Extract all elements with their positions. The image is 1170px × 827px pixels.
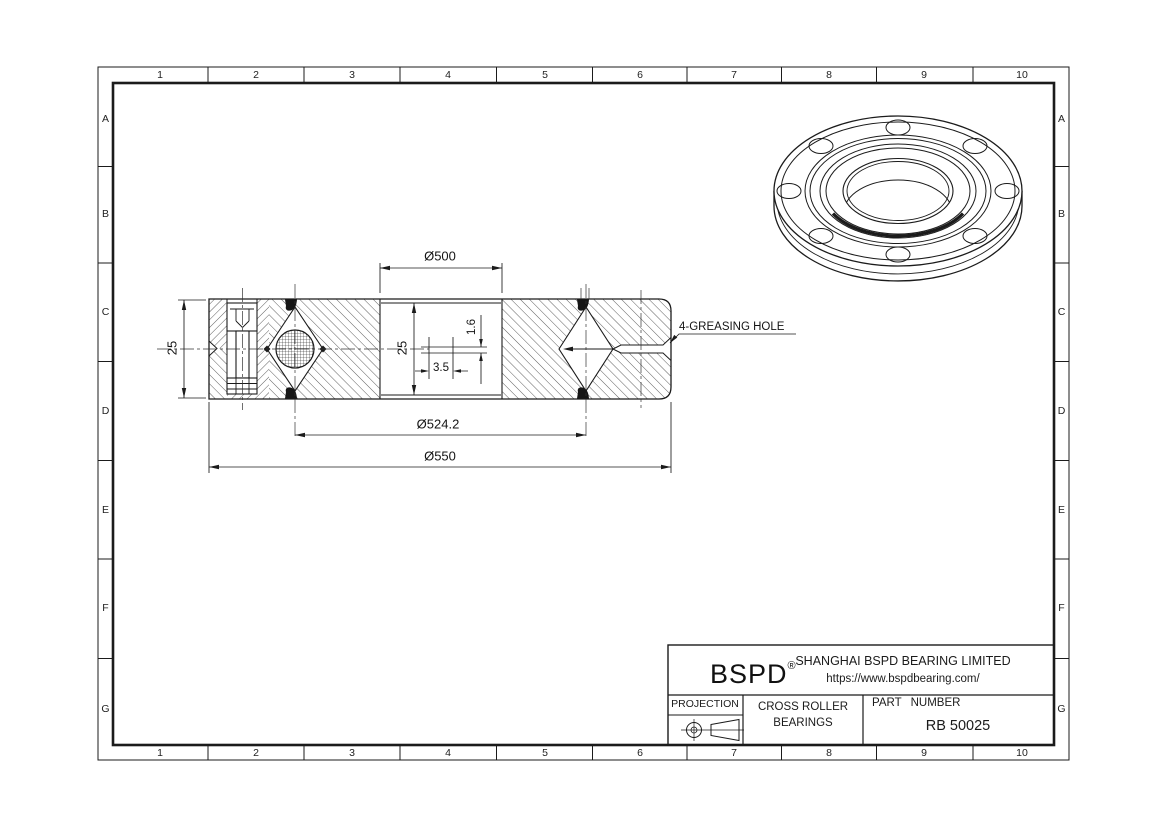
company-name: SHANGHAI BSPD BEARING LIMITED	[795, 654, 1010, 668]
grid-column-label-top: 2	[253, 69, 259, 81]
grid-row-label-right: F	[1058, 602, 1064, 614]
grid-column-label-bottom: 1	[157, 747, 163, 759]
section-view	[157, 263, 796, 473]
part-number-value: RB 50025	[926, 718, 991, 734]
grid-column-label-top: 3	[349, 69, 355, 81]
grid-row-label-left: B	[102, 208, 109, 220]
grid-row-label-left: F	[102, 602, 108, 614]
dim-pitch-label: Ø524.2	[417, 417, 460, 432]
grid-column-label-top: 9	[921, 69, 927, 81]
projection-symbol	[681, 719, 744, 741]
grid-column-label-top: 1	[157, 69, 163, 81]
grid-row-label-left: D	[102, 405, 110, 417]
dim-bore-label: Ø500	[424, 249, 456, 264]
grid-row-label-right: E	[1058, 504, 1065, 516]
grid-row-label-right: G	[1057, 703, 1065, 715]
grid-column-label-top: 7	[731, 69, 737, 81]
grid-column-label-bottom: 4	[445, 747, 451, 759]
grid-column-label-top: 4	[445, 69, 451, 81]
dim-width-left-label: 25	[165, 341, 180, 355]
company-logo: BSPD®	[710, 659, 797, 690]
grid-column-label-top: 8	[826, 69, 832, 81]
dim-width-inner-label: 25	[395, 341, 410, 355]
grid-column-label-top: 6	[637, 69, 643, 81]
product-name-line1: CROSS ROLLER	[758, 701, 848, 713]
grid-row-label-right: B	[1058, 208, 1065, 220]
grid-column-label-bottom: 3	[349, 747, 355, 759]
grid-column-label-top: 10	[1016, 69, 1028, 81]
company-website: https://www.bspdbearing.com/	[826, 673, 979, 685]
grid-row-label-right: A	[1058, 113, 1065, 125]
part-number-label: PART NUMBER	[872, 697, 960, 709]
grid-column-label-bottom: 6	[637, 747, 643, 759]
projection-label: PROJECTION	[671, 698, 739, 710]
grid-row-label-left: E	[102, 504, 109, 516]
dim-seal-width-label: 3.5	[431, 362, 451, 374]
grid-column-label-bottom: 9	[921, 747, 927, 759]
isometric-view	[774, 116, 1022, 281]
product-name-line2: BEARINGS	[773, 717, 832, 729]
dim-od-label: Ø550	[424, 449, 456, 464]
grid-column-label-bottom: 7	[731, 747, 737, 759]
grid-row-label-left: A	[102, 113, 109, 125]
grid-row-label-right: C	[1058, 306, 1066, 318]
greasing-hole-note: 4-GREASING HOLE	[679, 321, 784, 333]
dim-seal-height-label: 1.6	[466, 319, 478, 335]
grid-row-label-right: D	[1058, 405, 1066, 417]
grid-column-label-bottom: 5	[542, 747, 548, 759]
grid-column-label-bottom: 8	[826, 747, 832, 759]
grid-row-label-left: G	[101, 703, 109, 715]
drawing-sheet: Ø500 Ø524.2 Ø550 25 25 1.6 3.5 4-GREASIN…	[0, 0, 1170, 827]
drawing-linework	[0, 0, 1170, 827]
grid-column-label-top: 5	[542, 69, 548, 81]
grid-row-label-left: C	[102, 306, 110, 318]
grid-column-label-bottom: 10	[1016, 747, 1028, 759]
grid-column-label-bottom: 2	[253, 747, 259, 759]
